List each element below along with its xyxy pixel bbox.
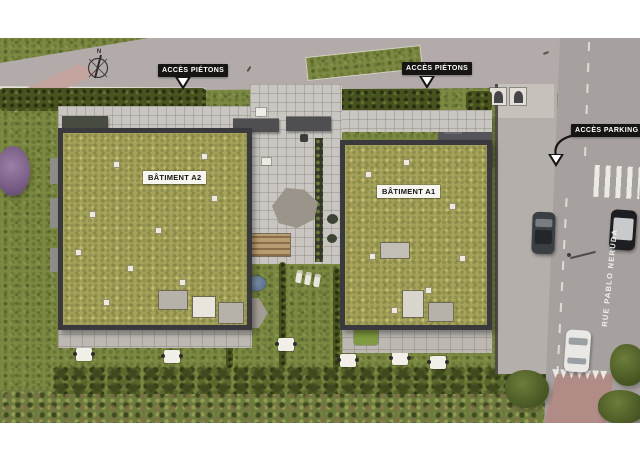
cellar-arch-icon: [490, 88, 506, 105]
planter-strip: [315, 138, 323, 262]
compass-icon: N: [80, 46, 116, 84]
site-plan-canvas: RUE PABLO NERUDA: [0, 38, 640, 423]
building-a2: BÂTIMENT A2: [58, 128, 252, 330]
picnic-table: [430, 356, 446, 369]
picnic-table: [164, 350, 180, 363]
garden-hedge: [279, 262, 286, 368]
sun-lounger: [295, 270, 303, 284]
access-pietons-west-label: ACCÈS PIÉTONS: [158, 64, 228, 77]
car-on-road-white: [564, 329, 592, 373]
hedge-row-south: [52, 366, 557, 394]
tree: [505, 370, 549, 408]
zebra-crossing: [593, 165, 640, 199]
courtyard-furniture: [262, 158, 271, 165]
sun-lounger: [304, 272, 312, 286]
hedge-north: [466, 91, 492, 111]
courtyard-furniture: [300, 134, 308, 142]
street-lamp-base: [567, 253, 571, 257]
picnic-table: [340, 354, 356, 367]
flowering-tree: [0, 146, 30, 196]
parking-ramp: [498, 84, 554, 118]
tree: [610, 344, 640, 386]
picnic-table: [278, 338, 294, 351]
courtyard-furniture: [256, 108, 266, 116]
building-a2-label: BÂTIMENT A2: [143, 171, 206, 184]
shrub-ball: [327, 214, 338, 224]
walkway-north-a1: [340, 110, 492, 132]
building-a1: BÂTIMENT A1: [340, 140, 492, 330]
tree: [598, 390, 640, 423]
shrub-ball: [327, 234, 337, 243]
building-a1-label: BÂTIMENT A1: [377, 185, 440, 198]
triangle-marker-icon: [175, 77, 191, 90]
garden-hedge: [333, 268, 340, 368]
bike-shelter: [286, 116, 331, 131]
picnic-table: [76, 348, 92, 361]
access-pietons-east-label: ACCÈS PIÉTONS: [402, 62, 472, 75]
sun-lounger: [313, 274, 321, 288]
terrace-lawn-patch: [354, 328, 378, 345]
site-plan-screenshot: RUE PABLO NERUDA: [0, 0, 640, 470]
triangle-marker-icon: [419, 76, 435, 89]
parked-car: [531, 212, 555, 255]
triangle-marker-icon: [548, 154, 564, 167]
picnic-table: [392, 352, 408, 365]
compass-north-label: N: [97, 49, 101, 55]
wild-planting-strip: [0, 390, 558, 423]
cellar-arch-icon: [510, 88, 526, 105]
